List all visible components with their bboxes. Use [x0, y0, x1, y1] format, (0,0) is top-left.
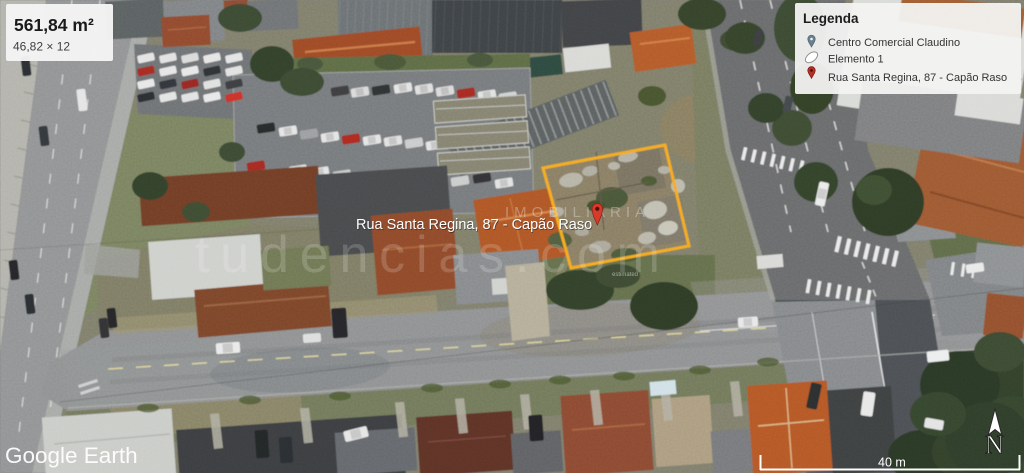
svg-text:561,84 m²: 561,84 m²: [14, 15, 94, 35]
svg-text:estimated: estimated: [612, 272, 638, 278]
svg-text:N: N: [985, 431, 1004, 460]
svg-text:40 m: 40 m: [878, 456, 906, 470]
svg-text:tudencias.com: tudencias.com: [195, 226, 660, 284]
svg-text:Rua Santa Regina, 87 - Capão R: Rua Santa Regina, 87 - Capão Raso: [828, 72, 1007, 84]
svg-text:Legenda: Legenda: [803, 11, 859, 26]
svg-text:Google Earth: Google Earth: [5, 443, 138, 468]
svg-text:Elemento 1: Elemento 1: [828, 54, 884, 66]
svg-text:Centro Comercial Claudino: Centro Comercial Claudino: [828, 37, 960, 49]
svg-text:Rua Santa Regina, 87 - Capão R: Rua Santa Regina, 87 - Capão Raso: [356, 217, 592, 233]
svg-text:46,82 × 12: 46,82 × 12: [13, 40, 70, 54]
